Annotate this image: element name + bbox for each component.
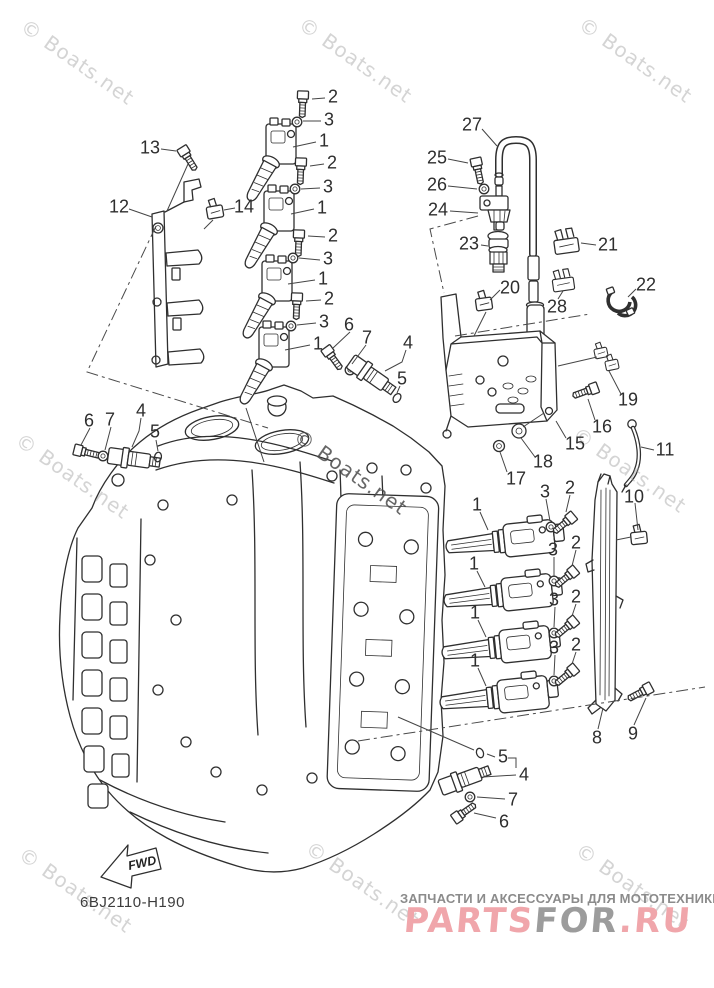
screw-13 xyxy=(177,145,200,173)
pipe-clamp-21 xyxy=(552,227,579,254)
coil-bracket-8 xyxy=(586,474,623,714)
clip-20 xyxy=(474,290,493,312)
block-side-plate xyxy=(327,493,439,791)
bolt-16 xyxy=(571,382,600,401)
sensor-group-bottom xyxy=(437,747,493,824)
ignition-coil-icon xyxy=(440,619,562,670)
parts-diagram-page: FWD © Boats.net© Boats.net© Boats.net© B… xyxy=(0,0,714,988)
ignition-coil-icon xyxy=(438,669,560,720)
logo-parts: PARTS xyxy=(402,901,536,941)
sensor-icon xyxy=(437,761,493,798)
ignition-coil-stack-right xyxy=(438,511,580,720)
bolt-9 xyxy=(626,682,655,704)
clip-19 xyxy=(592,341,619,371)
clip-14 xyxy=(205,197,224,219)
cable-bracket-12 xyxy=(152,179,204,367)
sensor-group-center xyxy=(321,344,403,404)
part-code-label: 6BJ2110-H190 xyxy=(80,894,185,911)
ignition-coil-icon xyxy=(442,567,564,618)
screw-25 xyxy=(470,157,486,185)
pipe-clamp-28 xyxy=(551,268,575,292)
parts-diagram-drawing: FWD xyxy=(0,0,714,988)
logo-for: FOR xyxy=(533,901,621,941)
pressure-regulator-23 xyxy=(488,222,508,272)
washer-26 xyxy=(479,184,489,194)
footer-branding: ЗАПЧАСТИ И АКСЕССУАРЫ ДЛЯ МОТОТЕХНИКИ PA… xyxy=(400,891,696,936)
ignition-coil-icon xyxy=(444,513,566,564)
partsfor-logo: PARTSFOR.RU xyxy=(399,906,698,936)
sensor-icon xyxy=(345,353,399,399)
clip-10 xyxy=(630,524,648,545)
ignition-coil-stack-left xyxy=(235,91,308,408)
logo-ru: .RU xyxy=(618,901,694,941)
collar-17 xyxy=(494,441,505,452)
hose-clamp-22 xyxy=(606,287,635,316)
stay-11 xyxy=(622,420,639,492)
fwd-arrow: FWD xyxy=(101,845,161,888)
